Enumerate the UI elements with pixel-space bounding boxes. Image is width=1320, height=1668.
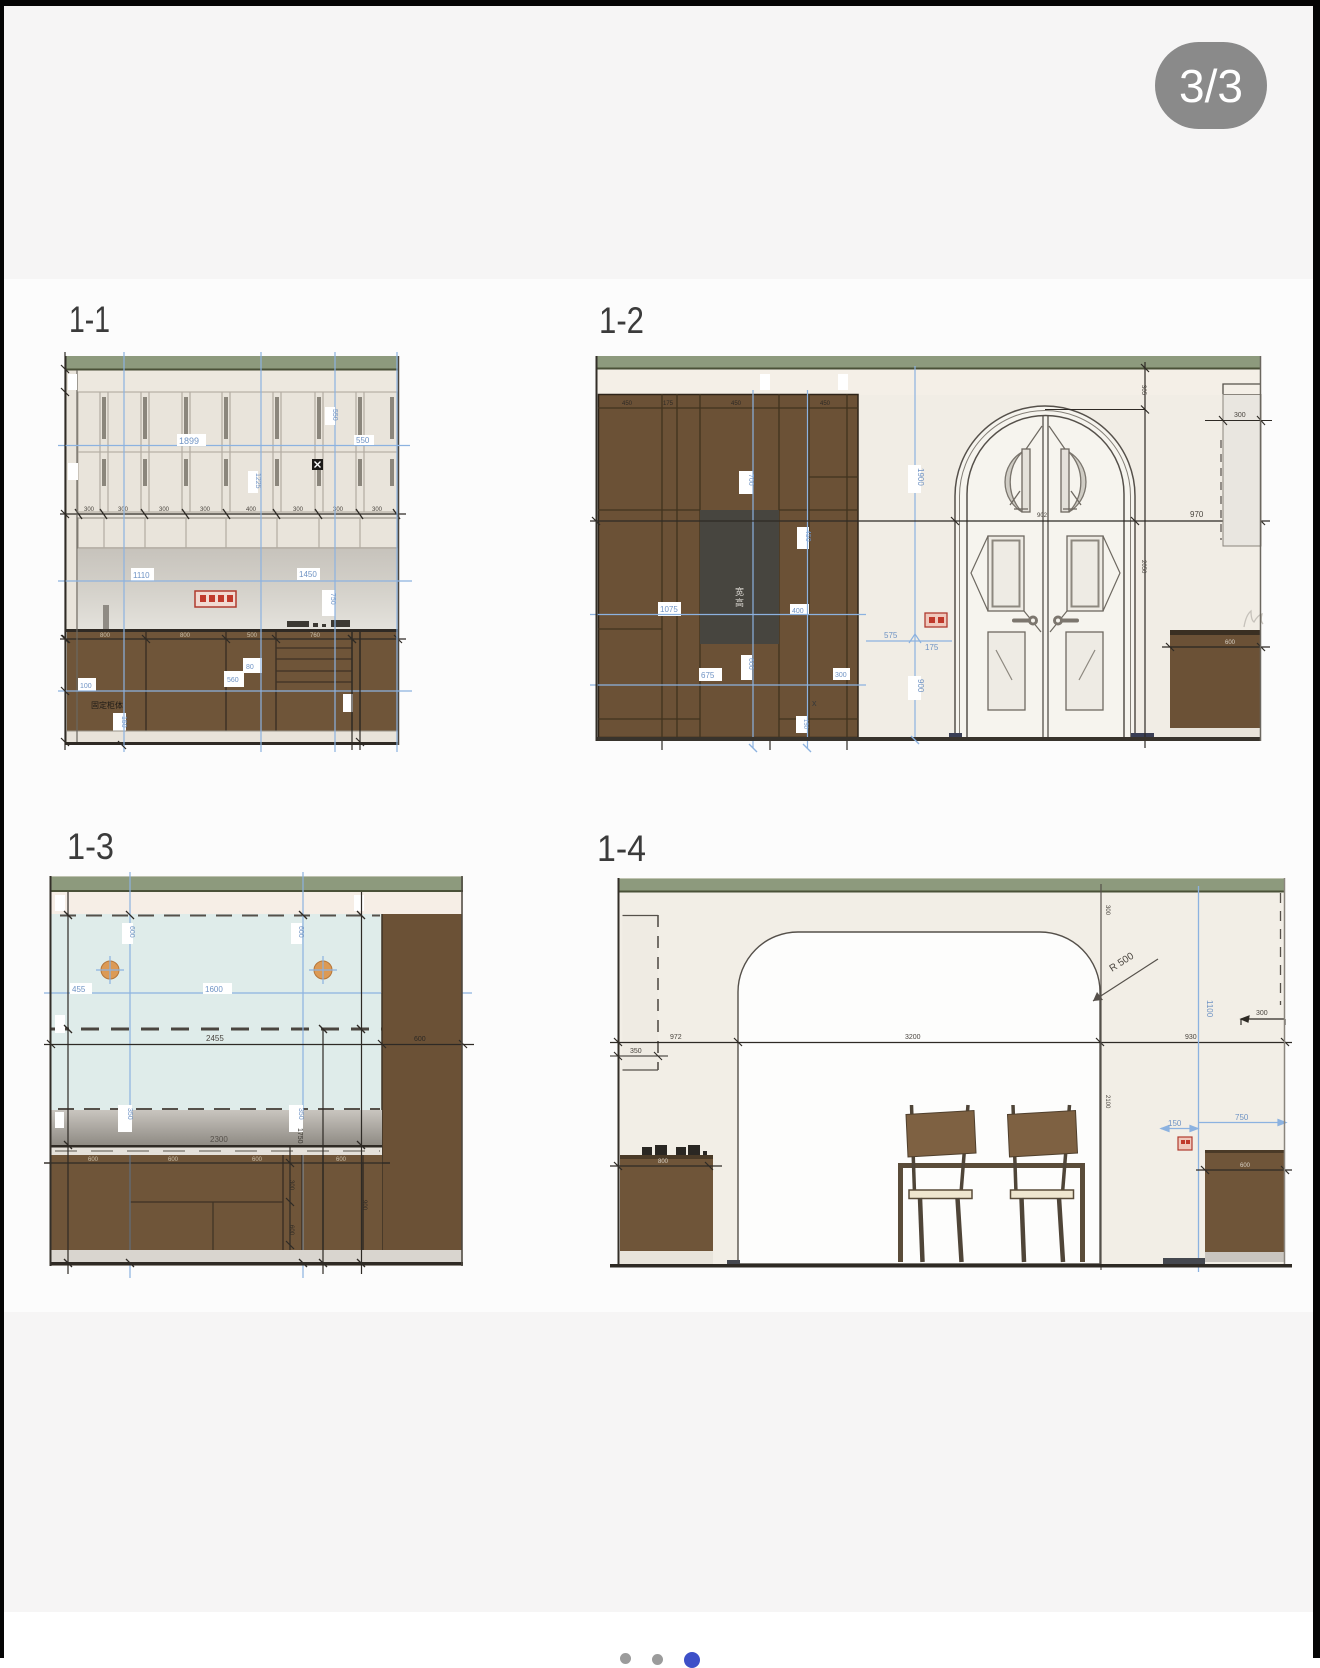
svg-text:600: 600 [414,1036,426,1043]
svg-text:1110: 1110 [133,571,150,580]
svg-text:750: 750 [1235,1113,1249,1122]
svg-text:300: 300 [835,672,847,679]
svg-text:675: 675 [701,671,715,680]
svg-text:350: 350 [630,1048,642,1055]
svg-text:1-3: 1-3 [67,826,114,867]
svg-text:305: 305 [1140,385,1146,396]
svg-text:2300: 2300 [210,1135,228,1144]
svg-text:600: 600 [297,926,304,938]
svg-text:600: 600 [128,926,135,938]
svg-text:600: 600 [288,1225,294,1236]
svg-text:2050: 2050 [1140,560,1146,574]
svg-text:175: 175 [925,643,939,652]
svg-text:600: 600 [1225,640,1236,646]
svg-text:1600: 1600 [205,985,223,994]
svg-text:800: 800 [180,633,191,639]
svg-text:x: x [812,698,817,708]
svg-text:972: 972 [670,1034,682,1041]
svg-text:300: 300 [293,507,304,513]
svg-text:350: 350 [297,1108,304,1120]
svg-text:455: 455 [72,985,86,994]
svg-text:600: 600 [1240,1163,1251,1169]
svg-text:600: 600 [168,1157,179,1163]
svg-text:350: 350 [126,1108,133,1120]
svg-text:1-2: 1-2 [599,300,644,341]
svg-text:1-1: 1-1 [69,299,110,340]
svg-text:575: 575 [884,631,898,640]
svg-text:800: 800 [100,633,111,639]
svg-text:300: 300 [372,507,383,513]
svg-text:3200: 3200 [905,1034,921,1041]
svg-text:550: 550 [331,409,338,421]
svg-text:1225: 1225 [254,473,261,489]
svg-text:1100: 1100 [1205,1000,1214,1018]
svg-text:高: 高 [735,597,744,608]
svg-text:300: 300 [118,507,129,513]
svg-text:300: 300 [159,507,170,513]
svg-text:600: 600 [252,1157,263,1163]
svg-text:550: 550 [356,436,370,445]
svg-text:2100: 2100 [1104,1095,1110,1109]
svg-text:560: 560 [227,677,239,684]
svg-text:300: 300 [288,1180,294,1191]
svg-text:宽: 宽 [735,586,744,597]
svg-text:1750: 1750 [296,1128,303,1144]
svg-text:300: 300 [1104,905,1110,916]
svg-text:固定柜体: 固定柜体 [91,700,123,710]
svg-text:150: 150 [1168,1119,1182,1128]
svg-text:1899: 1899 [179,436,199,446]
svg-text:902: 902 [1037,513,1048,519]
svg-text:300: 300 [84,507,95,513]
svg-text:450: 450 [820,401,831,407]
svg-text:1-4: 1-4 [597,828,646,869]
svg-text:300: 300 [1256,1010,1268,1017]
svg-text:300: 300 [1234,412,1246,419]
svg-text:175: 175 [663,401,674,407]
svg-text:400: 400 [246,507,257,513]
svg-text:100: 100 [80,683,92,690]
svg-text:970: 970 [1190,510,1204,519]
svg-text:500: 500 [247,633,258,639]
svg-text:760: 760 [310,633,321,639]
svg-text:800: 800 [658,1159,669,1165]
svg-text:450: 450 [622,401,633,407]
svg-text:80: 80 [246,664,254,671]
svg-text:450: 450 [731,401,742,407]
svg-text:300: 300 [200,507,211,513]
svg-text:930: 930 [1185,1034,1197,1041]
svg-text:1900: 1900 [916,468,925,486]
svg-text:900: 900 [916,679,925,693]
svg-text:1450: 1450 [299,570,317,579]
svg-text:2455: 2455 [206,1034,224,1043]
svg-text:1075: 1075 [660,605,678,614]
svg-text:600: 600 [88,1157,99,1163]
svg-text:600: 600 [336,1157,347,1163]
